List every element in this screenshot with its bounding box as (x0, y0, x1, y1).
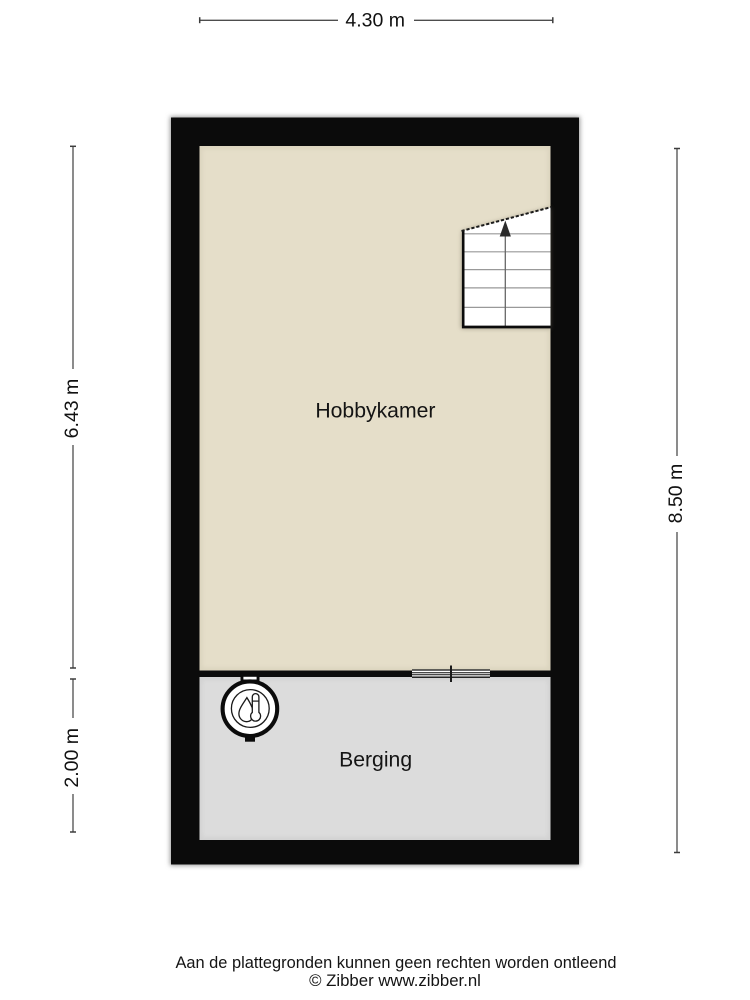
svg-text:Aan de plattegronden kunnen ge: Aan de plattegronden kunnen geen rechten… (175, 954, 616, 972)
svg-text:4.30 m: 4.30 m (345, 10, 405, 32)
svg-text:© Zibber www.zibber.nl: © Zibber www.zibber.nl (309, 971, 481, 990)
svg-text:Berging: Berging (339, 749, 412, 772)
svg-text:6.43 m: 6.43 m (61, 379, 83, 439)
svg-text:8.50 m: 8.50 m (665, 464, 687, 524)
svg-text:Hobbykamer: Hobbykamer (315, 399, 435, 422)
svg-text:2.00 m: 2.00 m (61, 728, 83, 788)
